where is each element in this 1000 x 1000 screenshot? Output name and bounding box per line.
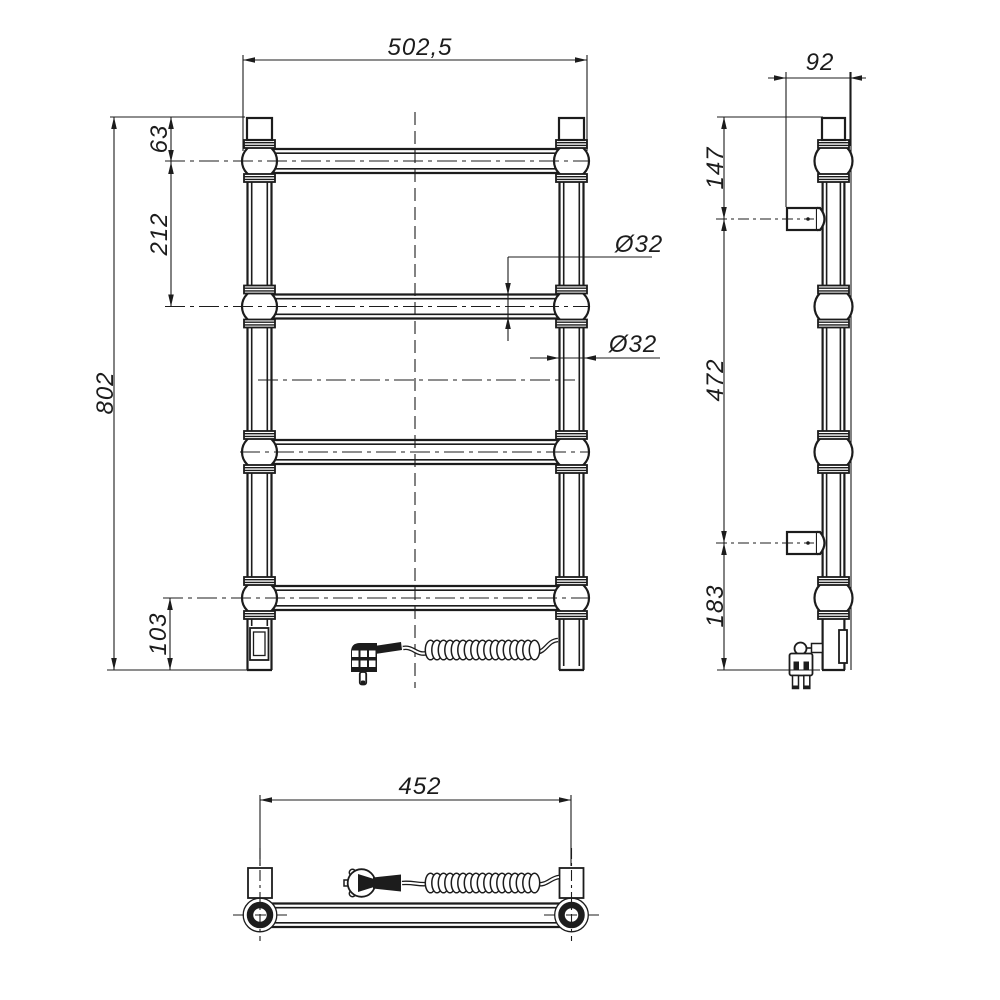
dim-overall-height: 802 (92, 117, 248, 670)
side-view: 92 147 472 183 (702, 49, 866, 689)
dim-bottom-offset: 103 (145, 598, 173, 670)
cable-gland (812, 644, 823, 653)
dim-bracket-to-bottom-label: 183 (702, 584, 729, 627)
power-cord (351, 640, 558, 685)
bottom-tube (262, 904, 569, 928)
right-post-top-cap (559, 118, 584, 140)
bottom-view: 452 (233, 773, 599, 941)
bottom-power-cord (344, 869, 559, 897)
dim-bracket-centers: 452 (260, 773, 571, 866)
dim-bracket-centers-label: 452 (398, 773, 441, 800)
bottom-spiral-cable (425, 873, 539, 893)
front-view: 502,5 802 63 212 (92, 34, 663, 688)
side-top-cap (822, 118, 845, 140)
dim-overall-height-label: 802 (92, 371, 119, 414)
bottom-power-plug-icon (344, 869, 401, 897)
power-plug-icon (351, 642, 402, 685)
dim-top-to-bracket: 147 (702, 117, 823, 219)
dim-bottom-offset-label: 103 (145, 612, 172, 655)
side-heater-housing (812, 630, 848, 663)
side-junction-3 (815, 431, 853, 473)
dim-rail-spacing-label: 212 (146, 212, 173, 256)
dim-rail-diameter-label: Ø32 (614, 231, 663, 258)
dim-top-offset-label: 63 (146, 125, 173, 154)
towel-rail-technical-drawing: 502,5 802 63 212 (0, 0, 1000, 1000)
dim-top-to-bracket-label: 147 (702, 146, 729, 190)
dim-depth-label: 92 (806, 49, 835, 76)
heater-housing (250, 628, 269, 660)
left-post-top-cap (247, 118, 272, 140)
spiral-cable (425, 640, 539, 660)
side-junction-2 (815, 286, 853, 328)
dim-rail-spacing: 212 (146, 162, 174, 307)
drawing-page: 502,5 802 63 212 (0, 0, 1000, 1000)
side-power-plug-icon (790, 643, 813, 690)
side-junction-1 (815, 140, 853, 182)
dim-post-diameter: Ø32 (530, 331, 660, 361)
side-power-switch (839, 630, 847, 663)
dim-top-offset: 63 (146, 117, 174, 162)
dim-bracket-spacing: 472 (702, 219, 729, 543)
dim-overall-width-label: 502,5 (387, 34, 452, 61)
dim-post-diameter-label: Ø32 (608, 331, 657, 358)
dim-bracket-spacing-label: 472 (702, 358, 729, 401)
side-junction-4 (815, 577, 853, 619)
